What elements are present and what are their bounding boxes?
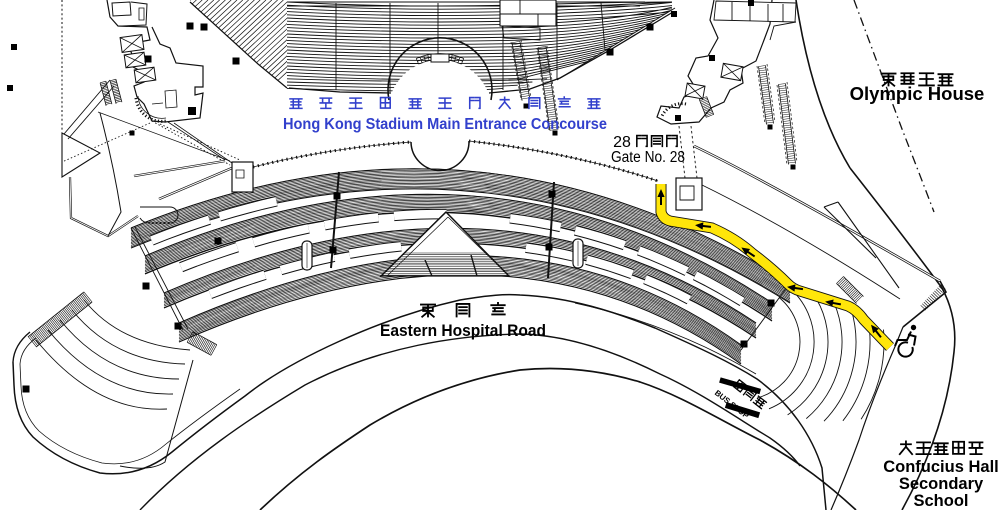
svg-text:Confucius Hall: Confucius Hall <box>883 458 999 476</box>
svg-text:Eastern Hospital Road: Eastern Hospital Road <box>380 322 546 340</box>
svg-text:School: School <box>913 492 968 510</box>
svg-text:Gate No. 28: Gate No. 28 <box>611 149 685 166</box>
svg-text:Olympic House: Olympic House <box>850 83 985 104</box>
svg-text:Hong Kong Stadium Main Entranc: Hong Kong Stadium Main Entrance Concours… <box>283 116 607 133</box>
svg-text:Secondary: Secondary <box>899 475 984 493</box>
